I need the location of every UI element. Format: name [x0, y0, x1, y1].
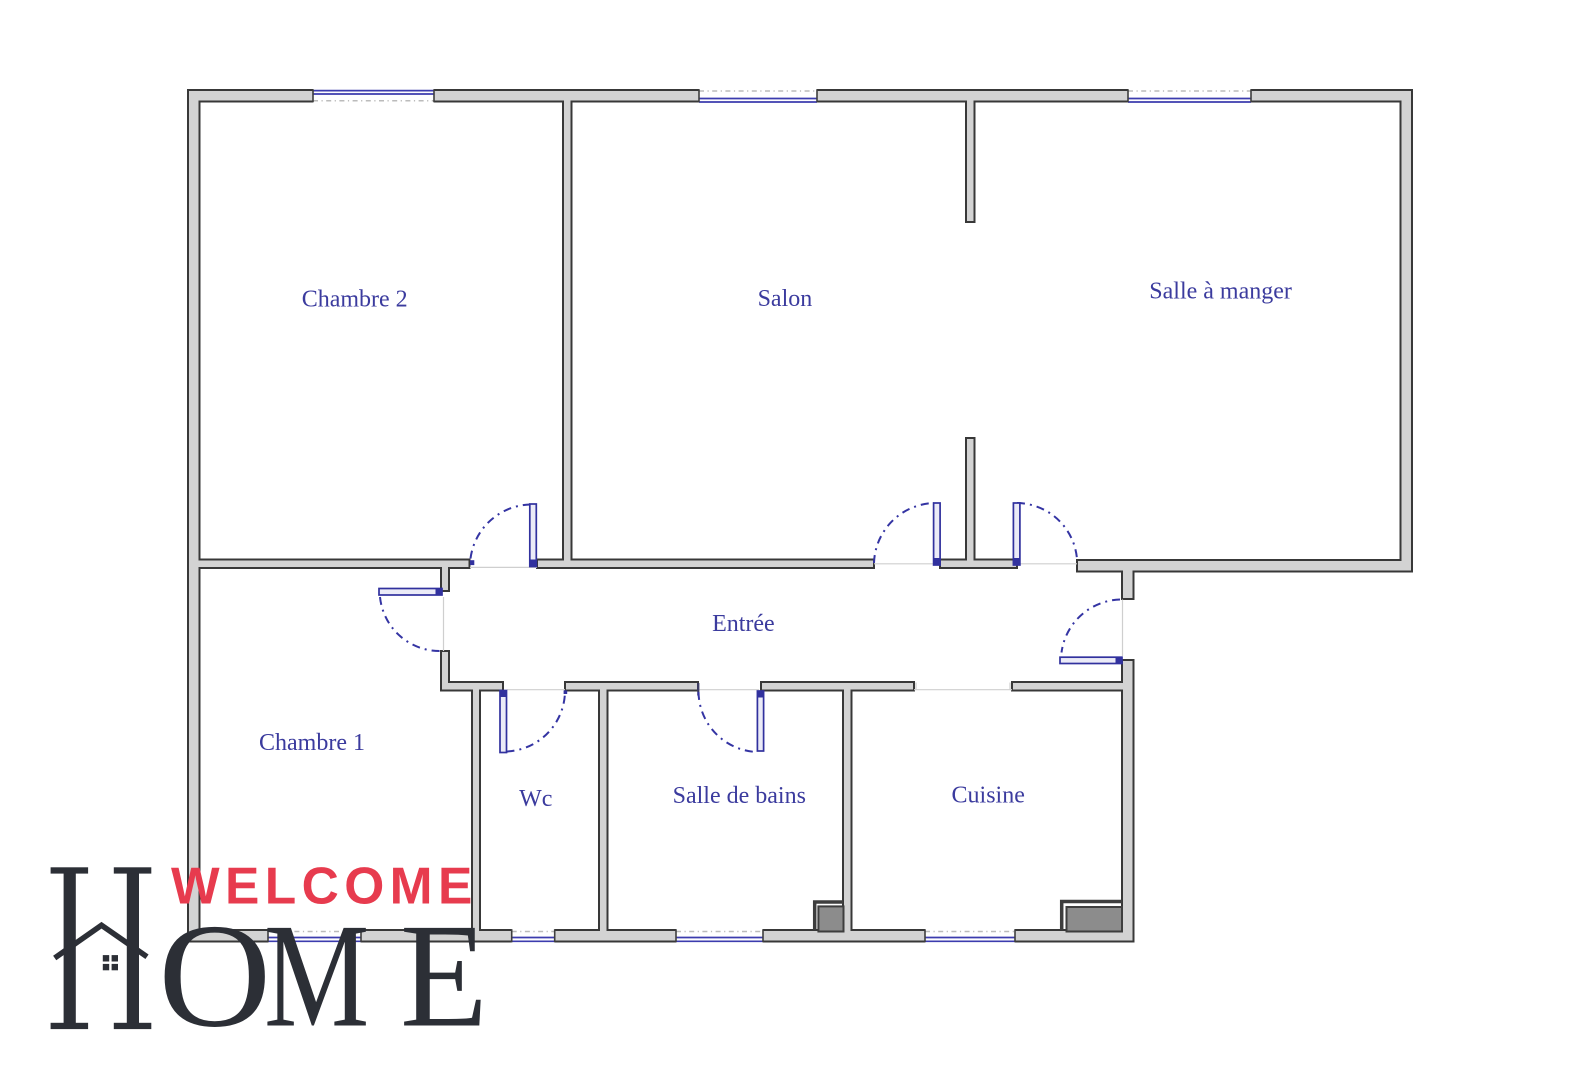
svg-text:Chambre 2: Chambre 2: [302, 287, 408, 313]
svg-text:Entrée: Entrée: [712, 611, 775, 637]
svg-text:Chambre 1: Chambre 1: [259, 730, 365, 756]
svg-text:Salle à manger: Salle à manger: [1149, 279, 1292, 305]
svg-text:Wc: Wc: [519, 786, 552, 812]
svg-text:M: M: [264, 894, 369, 1059]
svg-text:Salon: Salon: [758, 286, 813, 312]
svg-text:O: O: [158, 894, 271, 1059]
svg-text:E: E: [400, 893, 488, 1058]
svg-text:Salle de bains: Salle de bains: [673, 783, 806, 809]
svg-text:Cuisine: Cuisine: [952, 783, 1025, 809]
